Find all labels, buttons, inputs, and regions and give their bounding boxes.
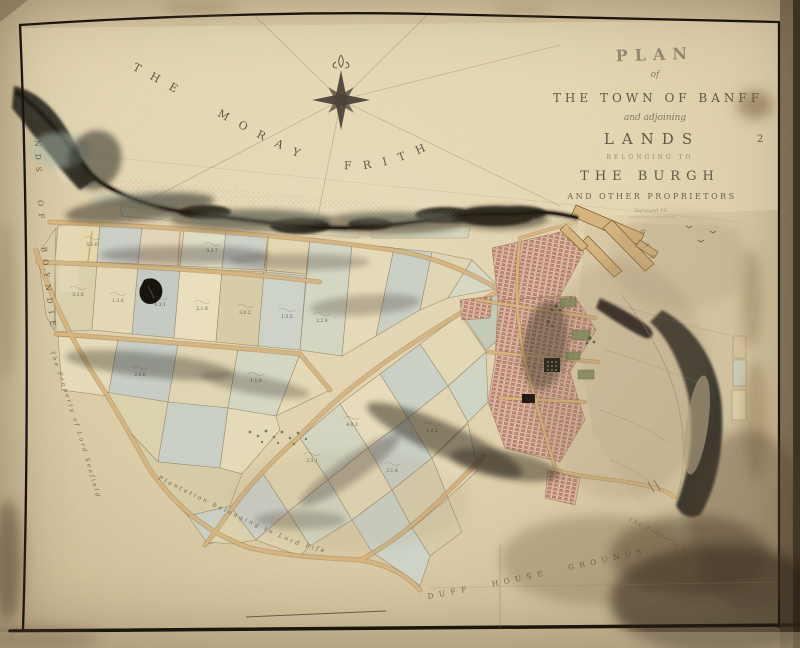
- map-photo: 3.2.6 1.2.6 4.3.1 2.1.8 3.0.2 1.3.5 2.2.…: [0, 0, 800, 648]
- paper-grain: [0, 0, 800, 648]
- map-canvas: 3.2.6 1.2.6 4.3.1 2.1.8 3.0.2 1.3.5 2.2.…: [0, 0, 800, 648]
